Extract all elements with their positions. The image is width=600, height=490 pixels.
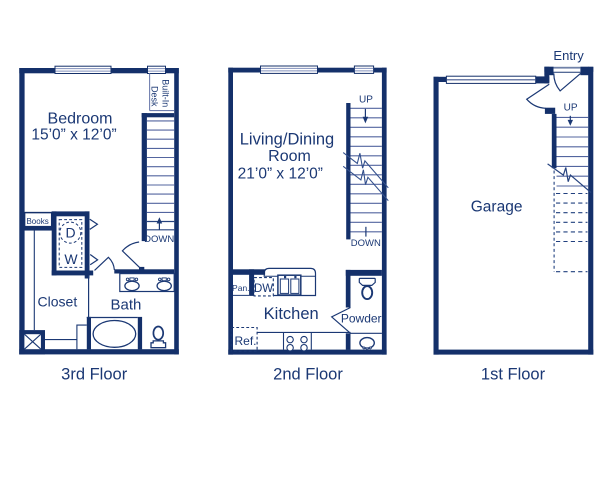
svg-text:UP: UP: [359, 94, 373, 105]
svg-text:21’0” x 12’0”: 21’0” x 12’0”: [238, 165, 323, 182]
svg-text:Living/Dining: Living/Dining: [240, 130, 334, 148]
svg-text:W: W: [64, 251, 78, 267]
svg-text:Powder: Powder: [341, 311, 382, 325]
svg-text:3rd Floor: 3rd Floor: [61, 366, 128, 384]
svg-text:Pan.: Pan.: [232, 283, 250, 293]
svg-text:Bedroom: Bedroom: [48, 110, 113, 127]
svg-text:1st Floor: 1st Floor: [481, 366, 546, 384]
svg-text:Entry: Entry: [553, 48, 584, 63]
svg-text:Garage: Garage: [471, 199, 523, 216]
svg-text:15’0” x 12’0”: 15’0” x 12’0”: [31, 127, 116, 144]
svg-text:Closet: Closet: [38, 294, 78, 310]
svg-text:Ref.: Ref.: [234, 334, 256, 348]
svg-text:2nd Floor: 2nd Floor: [273, 366, 343, 384]
svg-text:UP: UP: [564, 102, 578, 113]
svg-text:Books: Books: [26, 217, 48, 226]
svg-text:DOWN: DOWN: [351, 238, 381, 249]
svg-text:Desk: Desk: [149, 86, 159, 107]
svg-text:DOWN: DOWN: [144, 234, 174, 245]
svg-text:Kitchen: Kitchen: [264, 305, 319, 323]
svg-text:D: D: [66, 225, 76, 241]
svg-text:Room: Room: [268, 148, 311, 165]
svg-text:DW: DW: [254, 283, 273, 295]
svg-text:Built-In: Built-In: [160, 79, 170, 107]
svg-text:Bath: Bath: [110, 296, 141, 313]
